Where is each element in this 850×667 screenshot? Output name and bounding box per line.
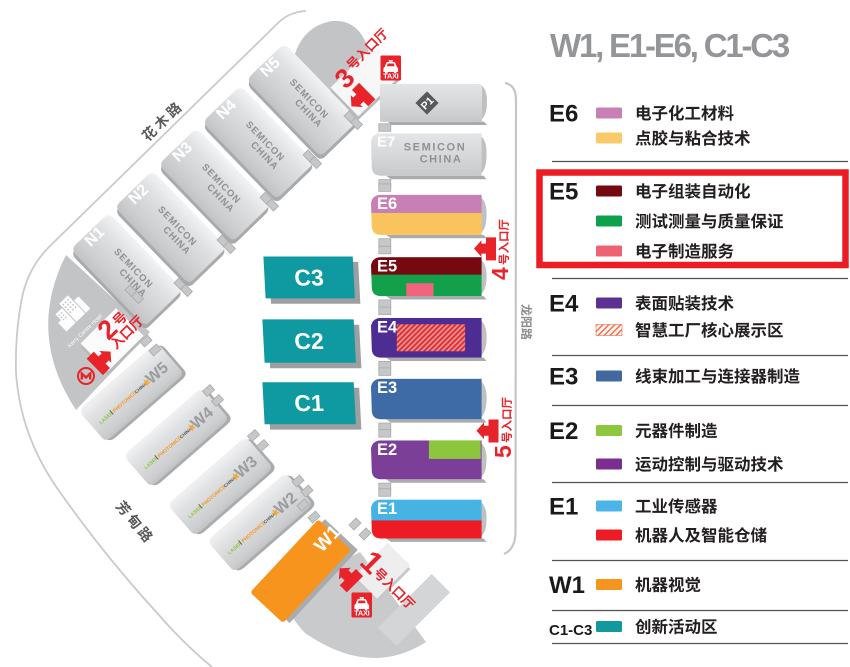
svg-text:C3: C3 [294,264,325,290]
svg-text:E1: E1 [377,500,397,518]
svg-text:E6: E6 [377,195,397,213]
svg-text:E5: E5 [549,179,578,206]
svg-text:E3: E3 [549,364,578,391]
svg-text:5: 5 [490,445,516,458]
svg-text:E7: E7 [377,134,395,151]
svg-text:E2: E2 [377,441,397,459]
svg-text:TAXI: TAXI [354,609,370,618]
svg-text:E5: E5 [377,258,397,276]
svg-text:E4: E4 [377,318,398,336]
svg-text:C1-C3: C1-C3 [549,622,592,639]
svg-text:C1: C1 [294,390,325,416]
svg-text:E3: E3 [377,379,397,397]
svg-text:E2: E2 [549,418,578,445]
svg-text:TAXI: TAXI [383,72,399,81]
svg-text:CHINA: CHINA [420,154,463,166]
svg-text:4: 4 [487,267,513,280]
svg-text:SEMICON: SEMICON [404,142,467,154]
svg-text:C2: C2 [294,328,325,354]
svg-text:E4: E4 [549,291,579,318]
svg-text:E1: E1 [549,494,578,521]
svg-text:W1: W1 [549,572,585,599]
svg-text:E6: E6 [549,101,578,128]
svg-text:W1, E1-E6, C1-C3: W1, E1-E6, C1-C3 [550,27,790,64]
